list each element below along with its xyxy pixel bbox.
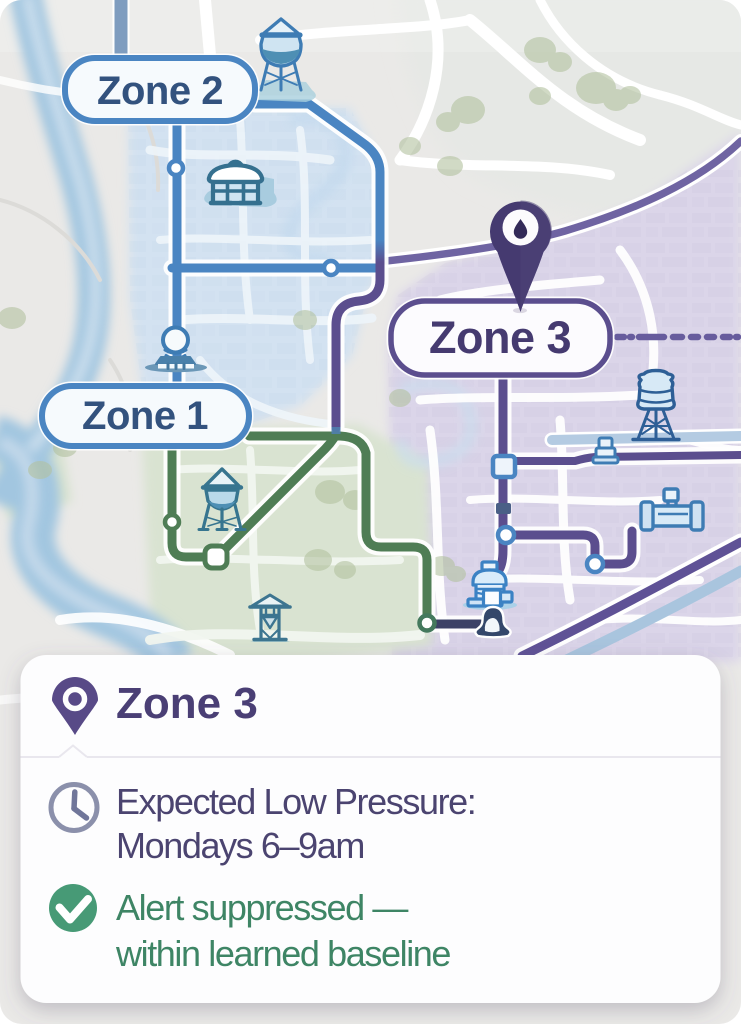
svg-text:Zone 2: Zone 2 <box>97 69 223 113</box>
svg-text:Mondays 6–9am: Mondays 6–9am <box>116 825 364 866</box>
svg-text:Expected Low Pressure:: Expected Low Pressure: <box>116 781 475 822</box>
svg-text:within learned baseline: within learned baseline <box>115 933 450 974</box>
svg-text:Alert suppressed —: Alert suppressed — <box>116 887 408 928</box>
svg-text:Zone 1: Zone 1 <box>82 394 208 438</box>
svg-text:Zone 3: Zone 3 <box>116 679 258 728</box>
svg-text:Zone 3: Zone 3 <box>429 312 571 363</box>
